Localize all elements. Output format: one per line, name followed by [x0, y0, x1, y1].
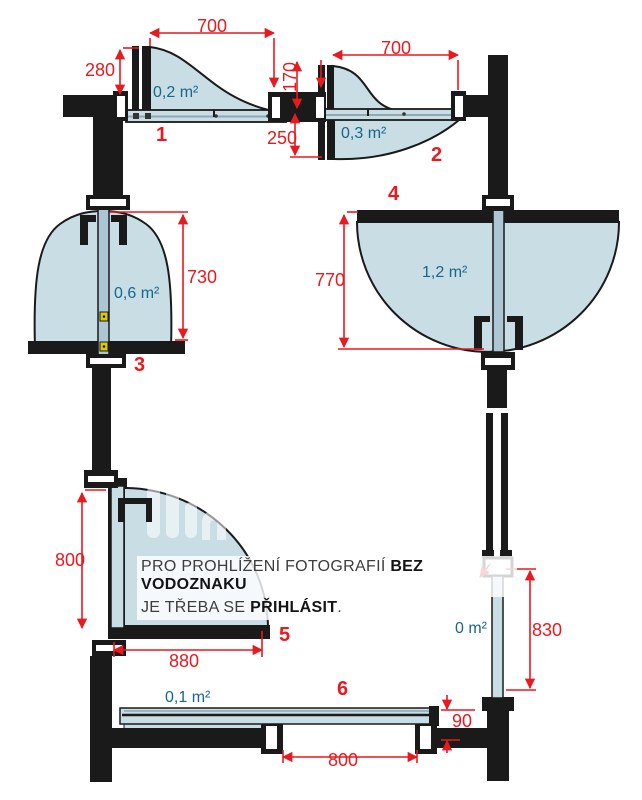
- dim-bottom-2: 250: [267, 129, 297, 147]
- right-rail-left: [486, 413, 493, 554]
- dim-height-panel: 830: [532, 621, 562, 639]
- bracket-slot: [272, 97, 280, 118]
- number-label-4: 4: [388, 184, 399, 204]
- dimensions: [82, 33, 536, 763]
- right-rail-right: [501, 413, 508, 554]
- dim-height-4: 770: [315, 271, 345, 289]
- diagram-drawing: [0, 0, 642, 800]
- bottom-beam-right: [433, 728, 489, 748]
- area-label-2: 0,3 m²: [341, 126, 386, 142]
- area-label-panel: 0 m²: [455, 621, 487, 637]
- area-label-1: 0,2 m²: [153, 85, 198, 101]
- left-beam: [63, 95, 115, 117]
- glass-fill: [150, 47, 284, 113]
- track-end-cap: [429, 706, 439, 726]
- right-bracket-arm: [464, 95, 488, 117]
- number-label-1: 1: [156, 125, 167, 145]
- area-label-4: 1,2 m²: [422, 265, 467, 281]
- bracket-slot: [266, 726, 277, 749]
- window-5-sill: [108, 625, 270, 639]
- bracket-slot: [420, 726, 431, 749]
- bottom-beam-left: [103, 728, 279, 748]
- window-1-swept-area: [150, 47, 284, 113]
- watermark-notice: PRO PROHLÍŽENÍ FOTOGRAFIÍ BEZ VODOZNAKU …: [137, 556, 517, 620]
- dim-height-1: 280: [85, 61, 115, 79]
- dim-width-5: 880: [169, 652, 199, 670]
- area-label-6: 0,1 m²: [165, 690, 210, 706]
- number-label-6: 6: [337, 679, 348, 699]
- window-4-rail: [493, 200, 504, 352]
- watermark-text: .: [337, 599, 342, 616]
- area-label-3: 0,6 m²: [114, 286, 159, 302]
- watermark-text: JE TŘEBA SE: [141, 599, 250, 616]
- number-label-2: 2: [431, 145, 442, 165]
- right-column-mid: [487, 370, 507, 412]
- dim-height-3: 730: [187, 268, 217, 286]
- left-post-mid: [92, 368, 111, 478]
- watermark-line-2: JE TŘEBA SE PŘIHLÁSIT.: [137, 597, 346, 620]
- watermark-line-1: PRO PROHLÍŽENÍ FOTOGRAFIÍ BEZ VODOZNAKU: [137, 556, 517, 597]
- bracket-slot: [316, 97, 324, 118]
- watermark-text-bold: PŘIHLÁSIT: [250, 599, 337, 616]
- window-4-semicircle: [357, 222, 619, 352]
- left-wall-bottom: [90, 656, 112, 782]
- window-3-rail: [98, 205, 109, 356]
- number-label-5: 5: [279, 625, 290, 645]
- panel-bottom-collar: [482, 697, 514, 711]
- dim-top-2: 170: [281, 62, 299, 92]
- dim-width-1: 700: [197, 17, 227, 35]
- dim-width-6: 800: [328, 751, 358, 769]
- bracket-slot: [455, 96, 463, 117]
- glass-fill-upper: [333, 66, 398, 111]
- dim-height-5: 800: [55, 551, 85, 569]
- number-label-3: 3: [134, 355, 145, 375]
- glass-fill: [357, 222, 619, 352]
- window-4-head-bar: [357, 210, 619, 222]
- dim-width-2: 700: [381, 39, 411, 57]
- right-column-top: [488, 55, 508, 195]
- bracket-slot: [117, 96, 125, 117]
- dim-lift-6: 90: [452, 712, 472, 730]
- left-post: [93, 117, 123, 195]
- watermark-text: PRO PROHLÍŽENÍ FOTOGRAFIÍ: [141, 558, 390, 575]
- right-column-bottom: [487, 711, 509, 781]
- diagram-canvas: 700 280 0,2 m² 1 700 170 250 0,3 m² 2 73…: [0, 0, 642, 800]
